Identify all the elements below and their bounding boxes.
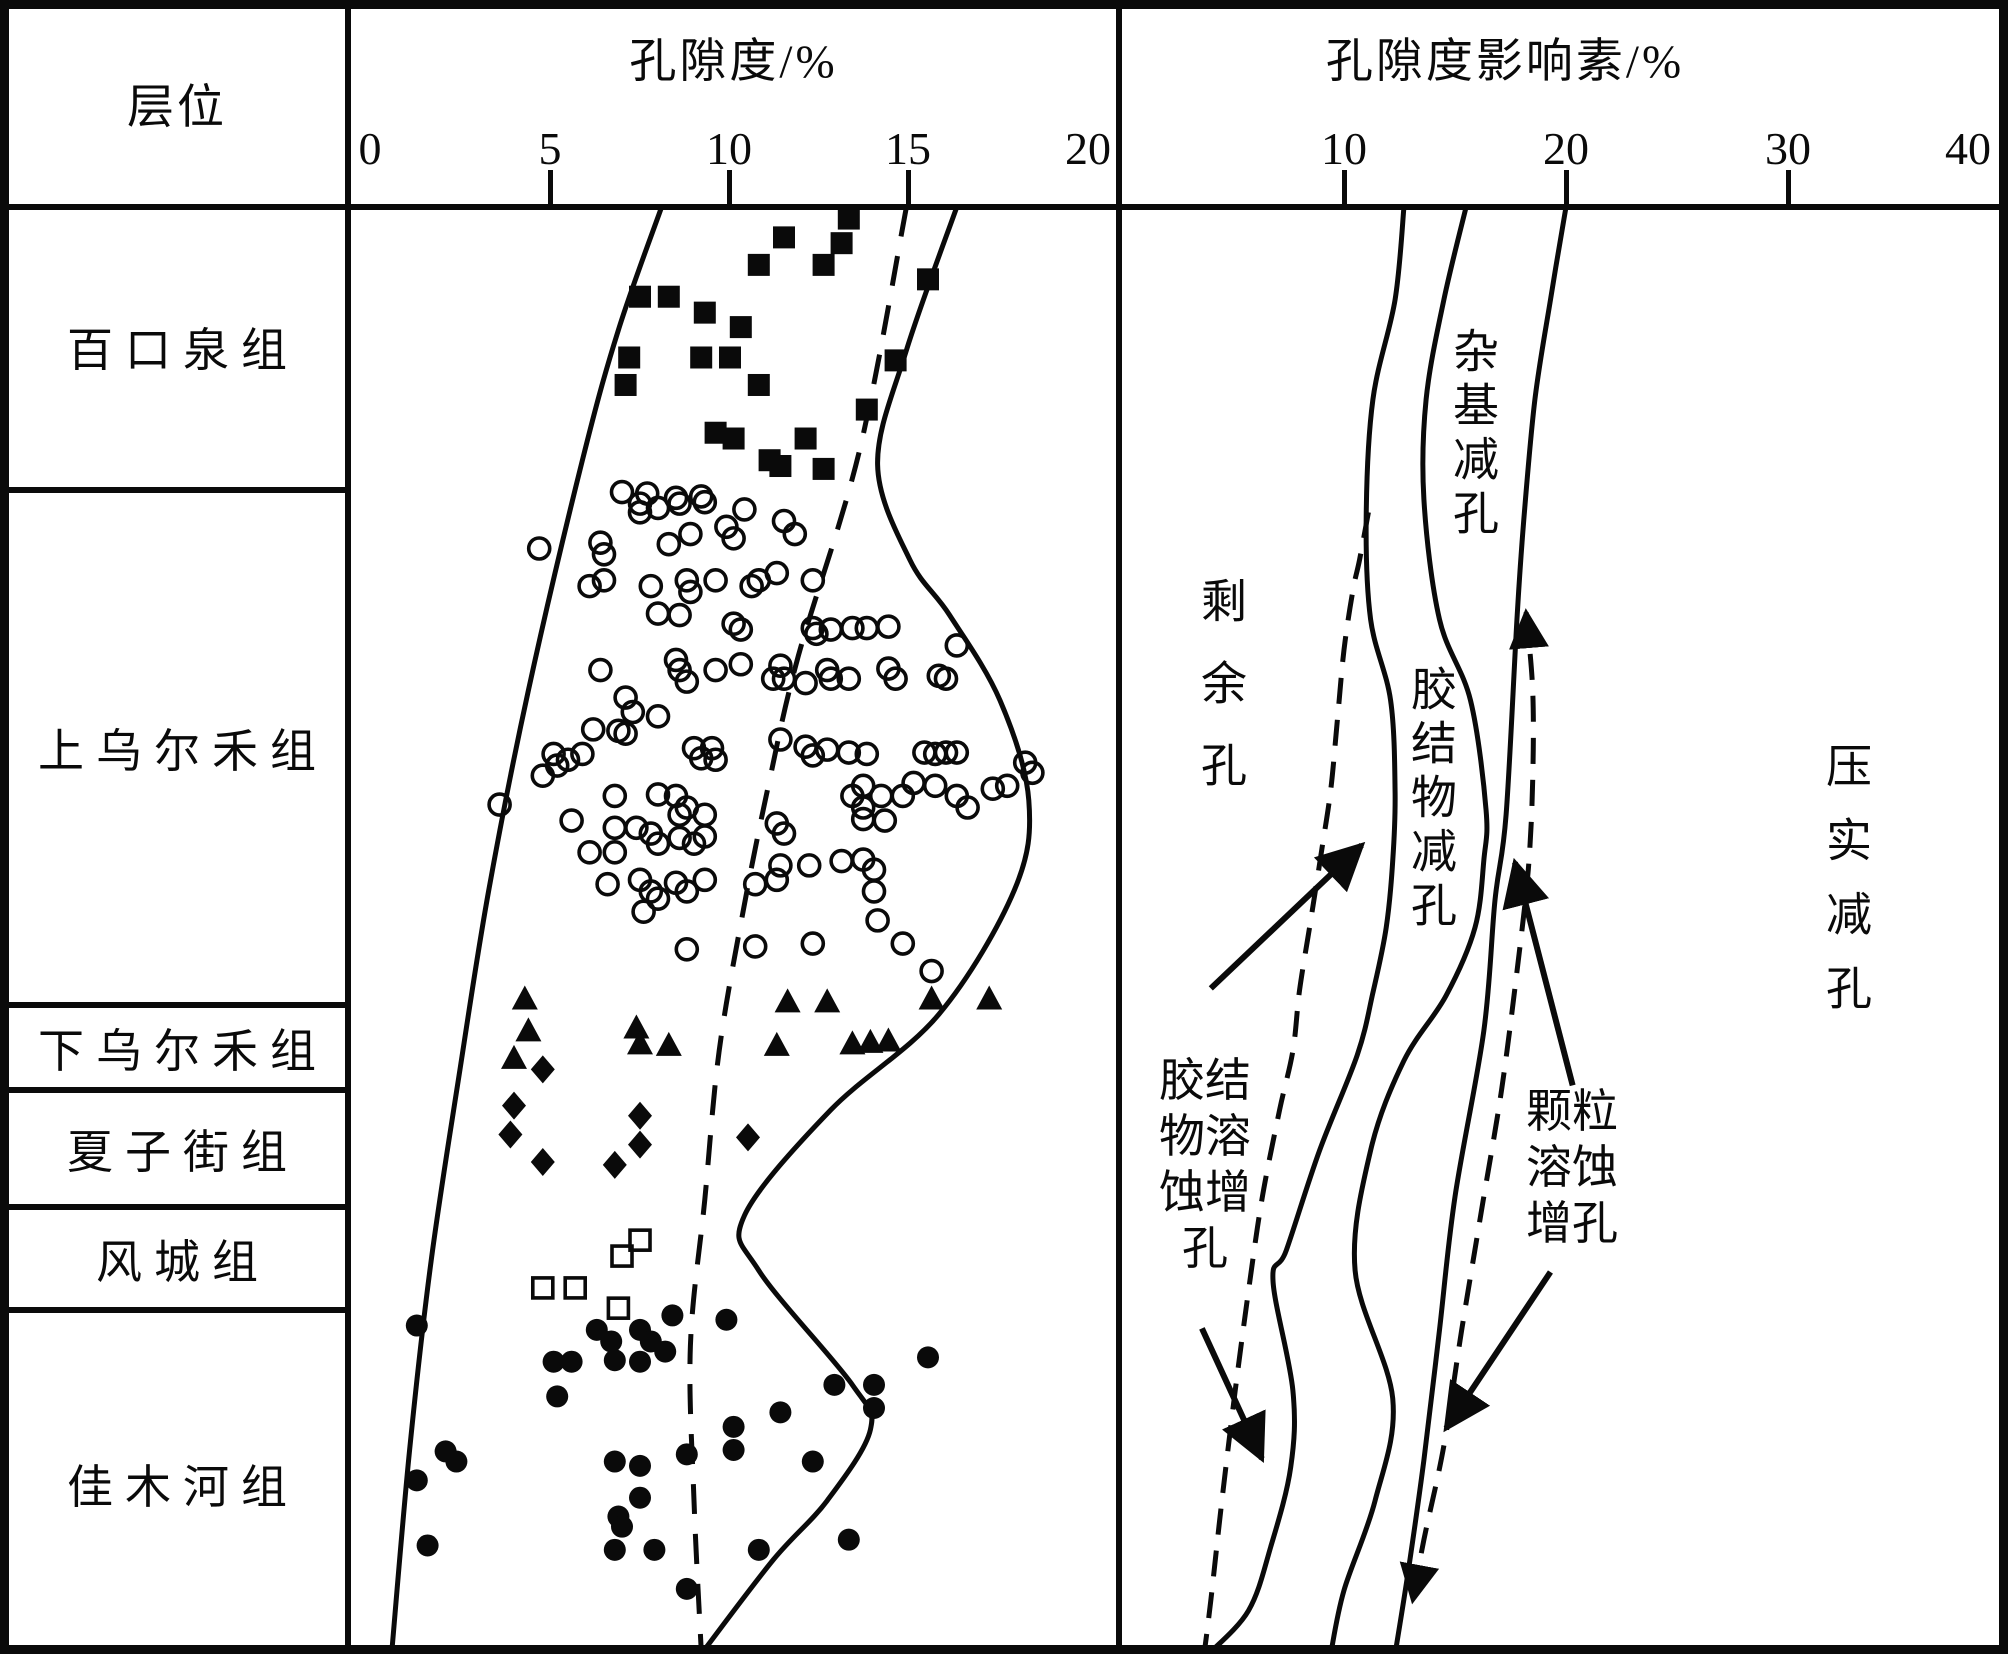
marker-open-circle — [590, 660, 611, 681]
row-line-3 — [9, 1087, 345, 1093]
label-compaction-reduced: 压实减孔 — [1812, 742, 1878, 1038]
marker-filled-triangle — [501, 1045, 527, 1069]
marker-filled-circle — [406, 1315, 428, 1337]
marker-open-circle — [745, 874, 766, 895]
strat-row-shangwuerhe: 上乌尔禾组 — [9, 493, 345, 1002]
marker-filled-circle — [917, 1346, 939, 1368]
mid-tick-0: 0 — [310, 122, 430, 175]
mid-tick-15: 15 — [848, 122, 968, 175]
marker-open-circle — [874, 810, 895, 831]
marker-open-circle — [532, 765, 553, 786]
marker-filled-circle — [643, 1539, 665, 1561]
marker-filled-circle — [629, 1455, 651, 1477]
marker-filled-circle — [417, 1534, 439, 1556]
marker-open-circle — [680, 524, 701, 545]
mid-panel-title: 孔隙度/% — [348, 22, 1119, 91]
marker-open-circle — [799, 855, 820, 876]
marker-open-circle — [615, 723, 636, 744]
marker-open-circle — [604, 785, 625, 806]
marker-filled-circle — [604, 1349, 626, 1371]
marker-filled-circle — [629, 1487, 651, 1509]
marker-filled-square — [690, 346, 712, 368]
divider-mid-right — [1116, 0, 1122, 1654]
marker-filled-square — [629, 286, 651, 308]
marker-filled-circle — [863, 1397, 885, 1419]
porosity-scatter-plot — [348, 207, 1119, 1654]
marker-filled-circle — [723, 1416, 745, 1438]
marker-filled-circle — [863, 1374, 885, 1396]
marker-open-circle — [802, 933, 823, 954]
marker-filled-diamond — [498, 1121, 522, 1149]
right-tick-30: 30 — [1728, 122, 1848, 175]
mid-tick-5: 5 — [490, 122, 610, 175]
marker-filled-circle — [838, 1529, 860, 1551]
annotation-arrow-grain-dissolution-upper — [1515, 862, 1573, 1085]
marker-open-circle — [604, 842, 625, 863]
marker-open-circle — [694, 804, 715, 825]
marker-open-circle — [878, 616, 899, 637]
marker-open-circle — [648, 603, 669, 624]
marker-filled-triangle — [512, 986, 538, 1010]
marker-filled-diamond — [531, 1148, 555, 1176]
marker-filled-square — [917, 268, 939, 290]
marker-open-circle — [705, 660, 726, 681]
marker-filled-triangle — [814, 988, 840, 1012]
marker-filled-square — [618, 346, 640, 368]
marker-open-circle — [745, 936, 766, 957]
mid-tickmark-15 — [906, 170, 911, 204]
right-tickmark-30 — [1786, 170, 1791, 204]
marker-open-circle — [921, 961, 942, 982]
marker-open-circle — [806, 623, 827, 644]
marker-filled-square — [795, 428, 817, 450]
mid-tickmark-10 — [727, 170, 732, 204]
mid-tickmark-5 — [548, 170, 553, 204]
marker-filled-circle — [823, 1374, 845, 1396]
marker-filled-triangle — [623, 1014, 649, 1038]
marker-filled-square — [723, 428, 745, 450]
marker-open-circle — [936, 668, 957, 689]
marker-open-circle — [694, 869, 715, 890]
marker-filled-circle — [661, 1304, 683, 1326]
marker-open-circle — [867, 910, 888, 931]
marker-open-circle — [583, 719, 604, 740]
divider-strat-mid — [345, 0, 351, 1654]
marker-open-circle — [925, 775, 946, 796]
marker-open-circle — [640, 576, 661, 597]
marker-filled-circle — [654, 1341, 676, 1363]
right-tick-20: 20 — [1506, 122, 1626, 175]
right-tickmark-10 — [1342, 170, 1347, 204]
marker-open-circle — [892, 933, 913, 954]
marker-filled-square — [748, 254, 770, 276]
label-grain-dissolution: 颗粒溶蚀增孔 — [1520, 1084, 1624, 1252]
marker-open-circle — [864, 881, 885, 902]
row-line-4 — [9, 1204, 345, 1210]
marker-filled-triangle — [764, 1032, 790, 1056]
marker-open-circle — [802, 570, 823, 591]
marker-open-circle — [648, 706, 669, 727]
marker-filled-square — [769, 455, 791, 477]
marker-filled-square — [748, 374, 770, 396]
curve-solid-boundary-a — [1209, 207, 1404, 1654]
marker-filled-circle — [604, 1451, 626, 1473]
marker-filled-square — [694, 302, 716, 324]
right-tick-40: 40 — [1908, 122, 2008, 175]
marker-open-circle — [871, 785, 892, 806]
marker-filled-square — [813, 458, 835, 480]
marker-filled-diamond — [628, 1131, 652, 1159]
marker-open-circle — [997, 775, 1018, 796]
label-matrix-reduced: 杂基减孔 — [1439, 327, 1505, 543]
marker-open-square — [608, 1298, 628, 1318]
marker-filled-triangle — [775, 988, 801, 1012]
marker-filled-circle — [676, 1578, 698, 1600]
marker-open-circle — [579, 842, 600, 863]
marker-open-circle — [694, 492, 715, 513]
mid-tick-20: 20 — [1028, 122, 1148, 175]
row-line-2 — [9, 1002, 345, 1008]
marker-filled-circle — [611, 1516, 633, 1538]
marker-filled-square — [838, 208, 860, 230]
marker-open-circle — [856, 618, 877, 639]
label-cement-dissolution: 胶结物溶蚀增孔 — [1155, 1053, 1255, 1277]
marker-open-circle — [766, 869, 787, 890]
marker-filled-triangle — [976, 986, 1002, 1010]
marker-filled-triangle — [656, 1032, 682, 1056]
marker-filled-square — [831, 232, 853, 254]
strat-row-fengcheng: 风城组 — [9, 1210, 345, 1307]
marker-filled-diamond — [603, 1151, 627, 1179]
marker-filled-square — [856, 399, 878, 421]
marker-filled-triangle — [515, 1017, 541, 1041]
marker-open-square — [565, 1278, 585, 1298]
marker-filled-diamond — [736, 1123, 760, 1151]
marker-open-circle — [669, 493, 690, 514]
strat-row-xiazijie: 夏子街组 — [9, 1093, 345, 1204]
marker-filled-circle — [445, 1451, 467, 1473]
marker-filled-circle — [748, 1539, 770, 1561]
marker-filled-square — [773, 226, 795, 248]
marker-open-circle — [946, 635, 967, 656]
marker-open-circle — [676, 939, 697, 960]
strat-column-title: 层位 — [9, 68, 345, 137]
marker-open-circle — [561, 810, 582, 831]
marker-open-square — [533, 1278, 553, 1298]
marker-filled-square — [885, 349, 907, 371]
marker-filled-square — [658, 286, 680, 308]
right-tick-10: 10 — [1284, 122, 1404, 175]
marker-filled-circle — [629, 1351, 651, 1373]
marker-open-circle — [658, 534, 679, 555]
marker-open-circle — [795, 673, 816, 694]
marker-filled-circle — [715, 1309, 737, 1331]
marker-open-circle — [529, 538, 550, 559]
right-panel-title: 孔隙度影响素/% — [1180, 22, 1830, 91]
marker-filled-square — [813, 254, 835, 276]
marker-filled-circle — [723, 1439, 745, 1461]
right-tickmark-20 — [1564, 170, 1569, 204]
marker-open-circle — [669, 605, 690, 626]
marker-open-circle — [770, 855, 791, 876]
marker-open-circle — [734, 499, 755, 520]
marker-open-circle — [597, 874, 618, 895]
envelope-left-curve — [392, 207, 662, 1654]
strat-row-xiawuerhe: 下乌尔禾组 — [9, 1008, 345, 1087]
annotation-arrow-grain-dissolution-lower — [1446, 1272, 1550, 1428]
label-remaining-pores: 剩余孔 — [1187, 577, 1253, 823]
marker-open-circle — [766, 563, 787, 584]
marker-open-circle — [705, 570, 726, 591]
marker-filled-circle — [769, 1401, 791, 1423]
porosity-stratigraphy-figure: 层位 孔隙度/% 孔隙度影响素/% 0 5 10 15 20 10 20 30 … — [0, 0, 2008, 1654]
annotation-arrow-cement-dissolution-upper — [1211, 845, 1362, 988]
marker-filled-triangle — [875, 1027, 901, 1051]
annotation-arrow-cement-dissolution-lower — [1202, 1328, 1262, 1458]
label-cement-reduced: 胶结物减孔 — [1397, 665, 1463, 935]
marker-filled-diamond — [628, 1102, 652, 1130]
marker-open-circle — [982, 778, 1003, 799]
marker-open-circle — [633, 901, 654, 922]
marker-open-circle — [831, 851, 852, 872]
mid-tick-10: 10 — [669, 122, 789, 175]
row-line-1 — [9, 487, 345, 493]
marker-open-circle — [770, 729, 791, 750]
marker-filled-diamond — [502, 1092, 526, 1120]
marker-filled-circle — [676, 1443, 698, 1465]
header-bottom-line — [0, 204, 2008, 210]
marker-filled-circle — [802, 1451, 824, 1473]
marker-open-circle — [730, 654, 751, 675]
marker-filled-circle — [604, 1539, 626, 1561]
marker-filled-square — [719, 346, 741, 368]
marker-filled-triangle — [919, 986, 945, 1010]
strat-row-baikouquan: 百口泉组 — [9, 207, 345, 487]
row-line-5 — [9, 1307, 345, 1313]
marker-filled-circle — [600, 1330, 622, 1352]
marker-filled-circle — [406, 1469, 428, 1491]
marker-filled-square — [730, 316, 752, 338]
strat-row-jiamuhe: 佳木河组 — [9, 1313, 345, 1654]
marker-filled-square — [615, 374, 637, 396]
marker-open-circle — [604, 817, 625, 838]
marker-filled-circle — [561, 1351, 583, 1373]
marker-filled-diamond — [531, 1055, 555, 1083]
marker-filled-circle — [546, 1385, 568, 1407]
